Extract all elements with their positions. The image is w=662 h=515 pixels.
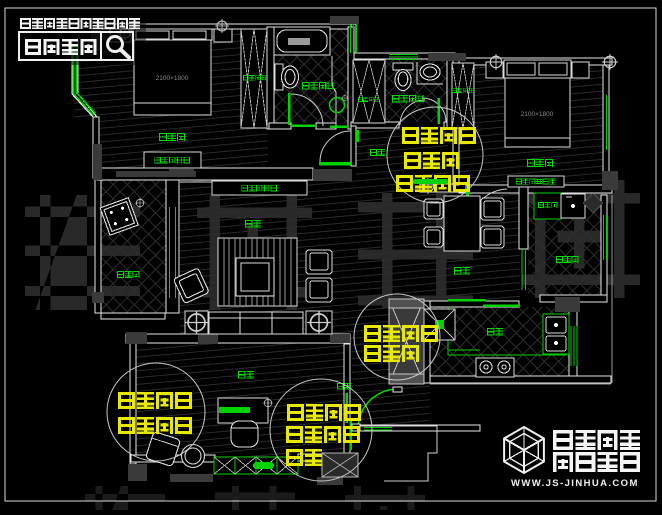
svg-text:WWW.JS-JINHUA.COM: WWW.JS-JINHUA.COM bbox=[511, 478, 639, 489]
svg-text:2100×1800: 2100×1800 bbox=[156, 75, 189, 82]
svg-text:2100×1800: 2100×1800 bbox=[521, 111, 554, 118]
